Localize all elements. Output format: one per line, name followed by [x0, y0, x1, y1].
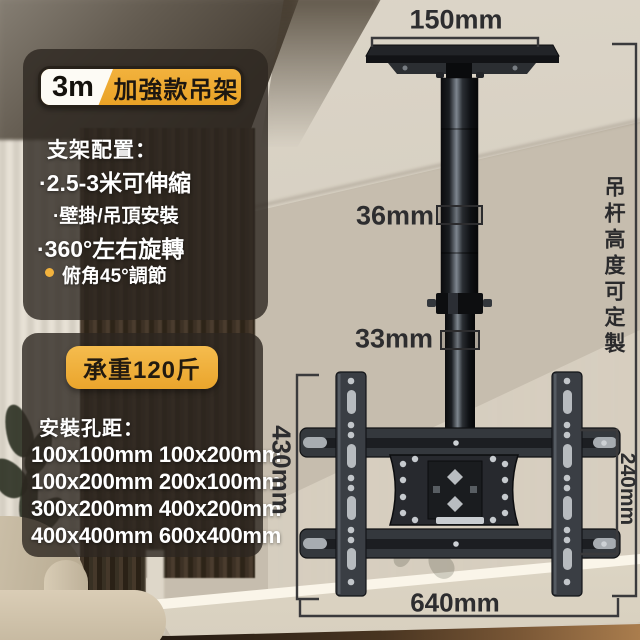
measure-430mm-line [297, 375, 319, 599]
capacity-badge: 承重120斤 [66, 346, 218, 389]
product-marketing-image: 3m 加強款吊架 支架配置： ·2.5-3米可伸縮 ·壁掛/吊頂安裝 ·360°… [0, 0, 640, 640]
holes-row: 100x200mm 200x100mm [31, 468, 281, 495]
holes-row: 400x400mm 600x400mm [31, 522, 281, 549]
measure-36mm: 36mm [356, 201, 434, 232]
size-badge: 3m 加強款吊架 [38, 66, 244, 108]
upper-diameter-mark [437, 206, 482, 224]
holes-row: 100x100mm 100x200mm [31, 441, 281, 468]
right-rail [552, 372, 582, 596]
holes-list: 100x100mm 100x200mm 100x200mm 200x100mm … [31, 441, 281, 549]
size-badge-spec: 3m [41, 69, 113, 105]
measure-640mm: 640mm [410, 588, 500, 619]
feature-item: 俯角45°調節 [62, 261, 167, 288]
bullet-dot-icon [45, 268, 54, 277]
vesa-plate [390, 455, 518, 525]
features-heading: 支架配置： [47, 134, 157, 164]
left-rail [336, 372, 366, 596]
ceiling-plate [366, 45, 559, 81]
measure-150mm: 150mm [409, 5, 502, 36]
telescopic-pole [427, 78, 492, 458]
size-badge-name: 加強款吊架 [113, 69, 241, 105]
measure-33mm: 33mm [355, 324, 433, 355]
measure-430mm: 430mm [266, 425, 297, 515]
measure-240mm: 240mm [615, 453, 639, 525]
lower-diameter-mark [441, 331, 479, 349]
feature-item: ·2.5-3米可伸縮 [39, 164, 191, 198]
feature-item: ·壁掛/吊頂安裝 [53, 201, 179, 228]
holes-row: 300x200mm 400x200mm [31, 495, 281, 522]
pole-height-note: 吊杆高度可定製 [598, 176, 628, 358]
holes-heading: 安裝孔距： [39, 412, 144, 441]
feature-item: ·360°左右旋轉 [37, 230, 184, 264]
